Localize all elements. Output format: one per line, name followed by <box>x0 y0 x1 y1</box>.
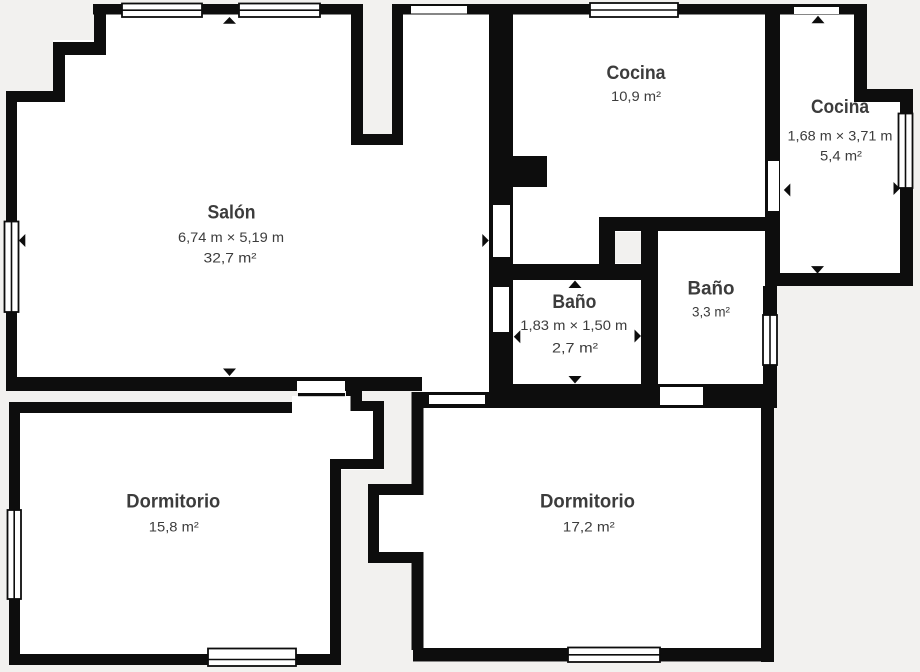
svg-text:1,83 m × 1,50 m: 1,83 m × 1,50 m <box>520 317 627 333</box>
svg-text:Dormitorio: Dormitorio <box>126 492 220 513</box>
svg-text:6,74 m × 5,19 m: 6,74 m × 5,19 m <box>178 229 284 245</box>
svg-text:Cocina: Cocina <box>607 63 666 84</box>
svg-text:15,8 m²: 15,8 m² <box>149 519 199 535</box>
svg-text:Dormitorio: Dormitorio <box>540 492 635 513</box>
svg-text:Baño: Baño <box>688 279 735 300</box>
svg-text:Salón: Salón <box>208 202 256 223</box>
svg-text:17,2 m²: 17,2 m² <box>563 519 615 535</box>
svg-text:32,7 m²: 32,7 m² <box>204 250 257 266</box>
svg-text:3,3 m²: 3,3 m² <box>692 304 730 320</box>
svg-text:Baño: Baño <box>552 292 596 313</box>
svg-text:2,7 m²: 2,7 m² <box>552 340 598 356</box>
svg-text:10,9 m²: 10,9 m² <box>611 88 661 104</box>
svg-text:1,68 m × 3,71 m: 1,68 m × 3,71 m <box>788 128 893 144</box>
svg-text:5,4 m²: 5,4 m² <box>820 147 862 163</box>
svg-text:Cocina: Cocina <box>811 97 869 118</box>
